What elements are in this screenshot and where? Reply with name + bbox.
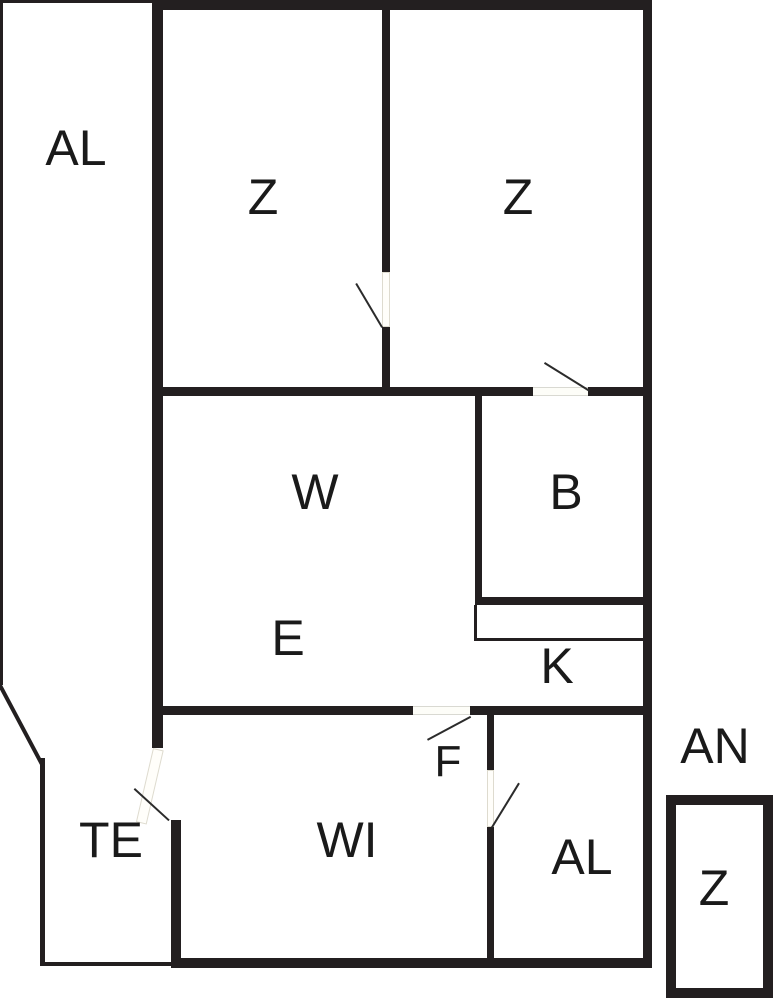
door-leaf-al (487, 770, 494, 827)
wall-right (643, 0, 652, 967)
room-label-z-left: Z (248, 172, 279, 222)
al-strip-top-line (0, 0, 152, 3)
room-label-f: F (435, 740, 462, 784)
divider-f-al-upper (487, 715, 494, 770)
wall-top (152, 0, 652, 10)
wall-lower-horizontal-left (152, 706, 413, 715)
wall-left-upper (152, 0, 163, 748)
door-swing-z-divider (355, 283, 383, 328)
room-label-z-right: Z (503, 172, 534, 222)
divider-f-al-lower (487, 827, 494, 958)
wall-b-left (475, 396, 482, 597)
floor-plan: AL Z Z W B E K F TE WI AL AN Z (0, 0, 773, 1000)
door-swing-al (491, 783, 520, 828)
terrace-bottom-line (40, 962, 172, 966)
room-label-e: E (271, 613, 304, 663)
terrace-left-line (40, 758, 45, 966)
k-counter-left-line (474, 605, 477, 641)
divider-z-z-lower (382, 327, 390, 387)
room-label-an: AN (680, 721, 749, 771)
room-label-w: W (291, 467, 338, 517)
wall-wi-left (171, 820, 181, 963)
room-label-z-annex: Z (699, 863, 730, 913)
room-label-wi: WI (316, 815, 377, 865)
al-strip-left-line (0, 0, 3, 685)
door-leaf-f (413, 706, 470, 715)
door-leaf-z-right (533, 387, 588, 396)
wall-b-bottom (475, 597, 643, 605)
room-label-te: TE (79, 815, 143, 865)
wall-mid-horizontal-right (588, 387, 652, 396)
room-label-al-bottom: AL (551, 832, 612, 882)
wall-bottom (171, 958, 652, 968)
room-label-b: B (549, 467, 582, 517)
room-label-k: K (540, 641, 573, 691)
wall-lower-horizontal-right (470, 706, 652, 715)
wall-mid-horizontal-left (152, 387, 533, 396)
room-label-al-top: AL (45, 123, 106, 173)
door-leaf-z-divider (382, 272, 390, 327)
al-strip-diagonal-line (0, 683, 44, 765)
divider-z-z-upper (382, 10, 390, 272)
